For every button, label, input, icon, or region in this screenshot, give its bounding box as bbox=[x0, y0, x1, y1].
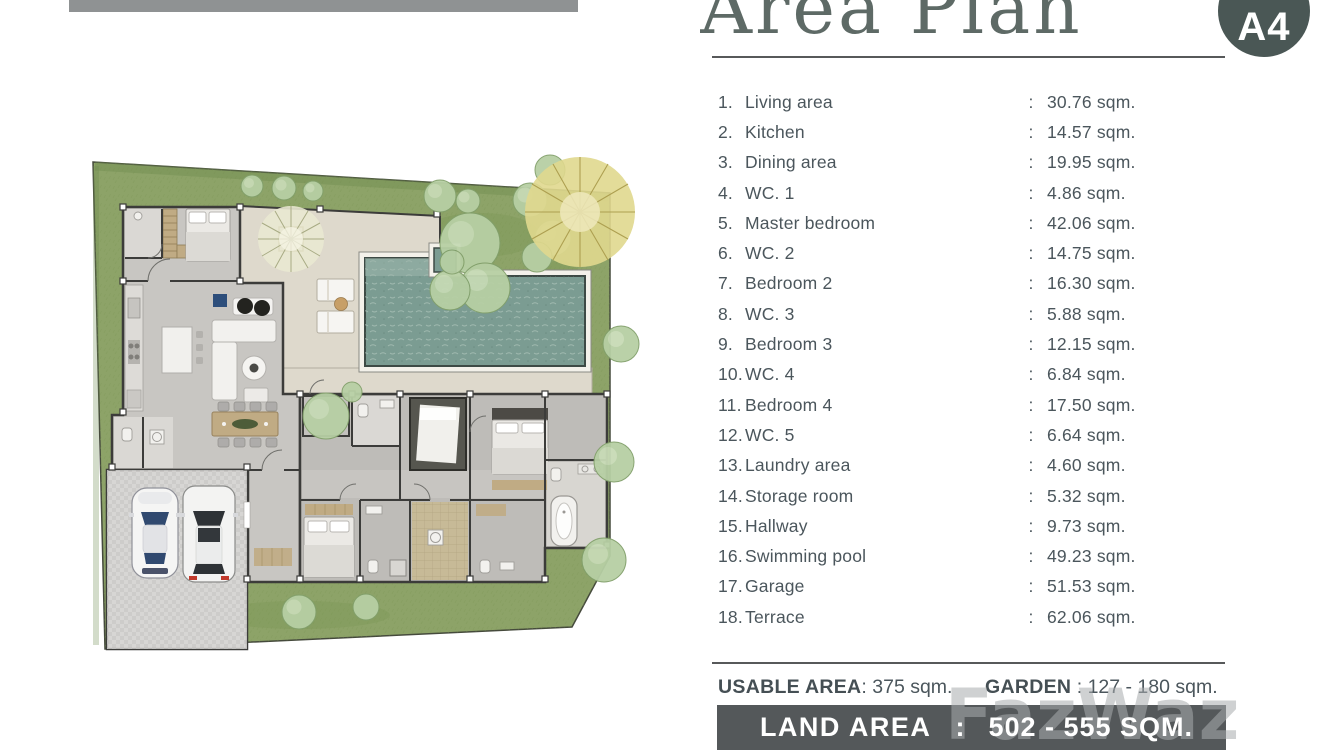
sink-icon bbox=[366, 506, 382, 514]
room-number: 6. bbox=[718, 243, 745, 264]
master-bathroom bbox=[547, 462, 605, 546]
room-area: 5.88 sqm. bbox=[1047, 304, 1126, 325]
shower bbox=[390, 560, 406, 576]
room-name: WC. 2 bbox=[745, 243, 1023, 264]
summary-divider bbox=[712, 662, 1225, 664]
toilet-icon bbox=[368, 560, 378, 573]
room-area: 4.86 sqm. bbox=[1047, 183, 1126, 204]
room-area-list: 1.Living area:30.76 sqm. 2.Kitchen:14.57… bbox=[712, 87, 1228, 632]
tree-icon bbox=[424, 180, 456, 212]
car-suv bbox=[180, 486, 238, 582]
tree-icon bbox=[272, 176, 296, 200]
room-area: 30.76 sqm. bbox=[1047, 92, 1136, 113]
tree-icon bbox=[594, 442, 634, 482]
room-number: 1. bbox=[718, 92, 745, 113]
table-row: 15.Hallway:9.73 sqm. bbox=[712, 511, 1228, 541]
room-area: 12.15 sqm. bbox=[1047, 334, 1136, 355]
room-area: 9.73 sqm. bbox=[1047, 516, 1126, 537]
table-row: 8.WC. 3:5.88 sqm. bbox=[712, 299, 1228, 329]
land-area-value: 502 - 555 SQM. bbox=[988, 714, 1193, 741]
table-row: 3.Dining area:19.95 sqm. bbox=[712, 148, 1228, 178]
armchair bbox=[254, 300, 270, 316]
table-row: 18.Terrace:62.06 sqm. bbox=[712, 602, 1228, 632]
tree-icon bbox=[603, 326, 639, 362]
room-name: Garage bbox=[745, 576, 1023, 597]
toilet-icon bbox=[358, 404, 368, 417]
room-name: WC. 4 bbox=[745, 364, 1023, 385]
bed bbox=[410, 398, 466, 470]
tree-icon bbox=[303, 393, 349, 439]
room-name: Storage room bbox=[745, 486, 1023, 507]
usable-area: USABLE AREA: 375 sqm. bbox=[718, 676, 952, 698]
table-row: 7.Bedroom 2:16.30 sqm. bbox=[712, 269, 1228, 299]
top-strip bbox=[69, 0, 578, 12]
garage bbox=[107, 470, 250, 649]
tree-icon bbox=[353, 594, 379, 620]
table-row: 11.Bedroom 4:17.50 sqm. bbox=[712, 390, 1228, 420]
table-row: 10.WC. 4:6.84 sqm. bbox=[712, 360, 1228, 390]
room-number: 9. bbox=[718, 334, 745, 355]
room-area: 6.84 sqm. bbox=[1047, 364, 1126, 385]
entry-wc bbox=[125, 209, 162, 258]
tree-icon bbox=[456, 189, 480, 213]
bed bbox=[186, 209, 230, 261]
room-name: Swimming pool bbox=[745, 546, 1023, 567]
bathtub bbox=[551, 496, 577, 546]
sink-icon bbox=[500, 562, 514, 570]
armchair bbox=[237, 298, 253, 314]
stove-icon bbox=[128, 340, 140, 364]
room-area: 19.95 sqm. bbox=[1047, 152, 1136, 173]
tree-icon bbox=[440, 250, 464, 274]
garage-door bbox=[244, 502, 250, 528]
room-name: Master bedroom bbox=[745, 213, 1023, 234]
tree-icon bbox=[303, 181, 323, 201]
room-name: Dining area bbox=[745, 152, 1023, 173]
tree-icon bbox=[282, 595, 316, 629]
sink-icon bbox=[128, 298, 140, 318]
table-row: 1.Living area:30.76 sqm. bbox=[712, 87, 1228, 117]
page-title: Area Plan bbox=[700, 0, 1130, 44]
tree-icon bbox=[430, 270, 470, 310]
sink-icon bbox=[380, 400, 394, 408]
kitchen-counter bbox=[125, 285, 143, 411]
title-divider bbox=[712, 56, 1225, 58]
room-name: WC. 5 bbox=[745, 425, 1023, 446]
floor-plan bbox=[85, 150, 645, 660]
room-number: 11. bbox=[718, 395, 745, 416]
room-area: 62.06 sqm. bbox=[1047, 607, 1136, 628]
table-row: 2.Kitchen:14.57 sqm. bbox=[712, 117, 1228, 147]
room-area: 51.53 sqm. bbox=[1047, 576, 1136, 597]
table-row: 4.WC. 1:4.86 sqm. bbox=[712, 178, 1228, 208]
room-area: 14.57 sqm. bbox=[1047, 122, 1136, 143]
room-number: 13. bbox=[718, 455, 745, 476]
room-number: 10. bbox=[718, 364, 745, 385]
room-name: Bedroom 2 bbox=[745, 273, 1023, 294]
room-name: WC. 1 bbox=[745, 183, 1023, 204]
car-sedan bbox=[129, 488, 181, 578]
room-number: 18. bbox=[718, 607, 745, 628]
room-number: 2. bbox=[718, 122, 745, 143]
sink-icon bbox=[134, 212, 142, 220]
table-row: 6.WC. 2:14.75 sqm. bbox=[712, 238, 1228, 268]
room-name: Terrace bbox=[745, 607, 1023, 628]
tree-icon bbox=[342, 382, 362, 402]
room-area: 4.60 sqm. bbox=[1047, 455, 1126, 476]
land-area-label: LAND AREA bbox=[760, 714, 932, 741]
room-number: 16. bbox=[718, 546, 745, 567]
room-number: 14. bbox=[718, 486, 745, 507]
bench bbox=[492, 480, 548, 490]
room-number: 3. bbox=[718, 152, 745, 173]
tree-icon bbox=[582, 538, 626, 582]
room-name: Bedroom 3 bbox=[745, 334, 1023, 355]
plan-type-badge: A4 bbox=[1218, 0, 1310, 57]
fan-tree bbox=[258, 206, 324, 272]
fridge-icon bbox=[127, 390, 141, 408]
room-area: 6.64 sqm. bbox=[1047, 425, 1126, 446]
fan-tree bbox=[525, 157, 635, 267]
room-number: 12. bbox=[718, 425, 745, 446]
room-number: 7. bbox=[718, 273, 745, 294]
room-area: 17.50 sqm. bbox=[1047, 395, 1136, 416]
badge-label: A4 bbox=[1237, 7, 1290, 57]
room-area: 42.06 sqm. bbox=[1047, 213, 1136, 234]
table-row: 13.Laundry area:4.60 sqm. bbox=[712, 451, 1228, 481]
room-number: 17. bbox=[718, 576, 745, 597]
room-name: Laundry area bbox=[745, 455, 1023, 476]
room-area: 14.75 sqm. bbox=[1047, 243, 1136, 264]
side-table bbox=[335, 298, 348, 311]
toilet-icon bbox=[551, 468, 561, 481]
room-area: 16.30 sqm. bbox=[1047, 273, 1136, 294]
table-row: 17.Garage:51.53 sqm. bbox=[712, 572, 1228, 602]
room-number: 5. bbox=[718, 213, 745, 234]
toilet-icon bbox=[480, 560, 490, 573]
room-name: Kitchen bbox=[745, 122, 1023, 143]
room-name: WC. 3 bbox=[745, 304, 1023, 325]
dining-table bbox=[212, 402, 278, 447]
table-row: 9.Bedroom 3:12.15 sqm. bbox=[712, 329, 1228, 359]
room-number: 8. bbox=[718, 304, 745, 325]
room-number: 4. bbox=[718, 183, 745, 204]
table-row: 14.Storage room:5.32 sqm. bbox=[712, 481, 1228, 511]
room-number: 15. bbox=[718, 516, 745, 537]
room-area: 49.23 sqm. bbox=[1047, 546, 1136, 567]
table-row: 16.Swimming pool:49.23 sqm. bbox=[712, 541, 1228, 571]
brochure-page: Area Plan A4 1.Living area:30.76 sqm. 2.… bbox=[0, 0, 1342, 754]
toilet-icon bbox=[122, 428, 132, 441]
room-name: Bedroom 4 bbox=[745, 395, 1023, 416]
room-name: Living area bbox=[745, 92, 1023, 113]
bed bbox=[304, 504, 354, 577]
tree-icon bbox=[241, 175, 263, 197]
room-area: 5.32 sqm. bbox=[1047, 486, 1126, 507]
table-row: 5.Master bedroom:42.06 sqm. bbox=[712, 208, 1228, 238]
room-name: Hallway bbox=[745, 516, 1023, 537]
tv-icon bbox=[213, 294, 227, 307]
table-row: 12.WC. 5:6.64 sqm. bbox=[712, 420, 1228, 450]
